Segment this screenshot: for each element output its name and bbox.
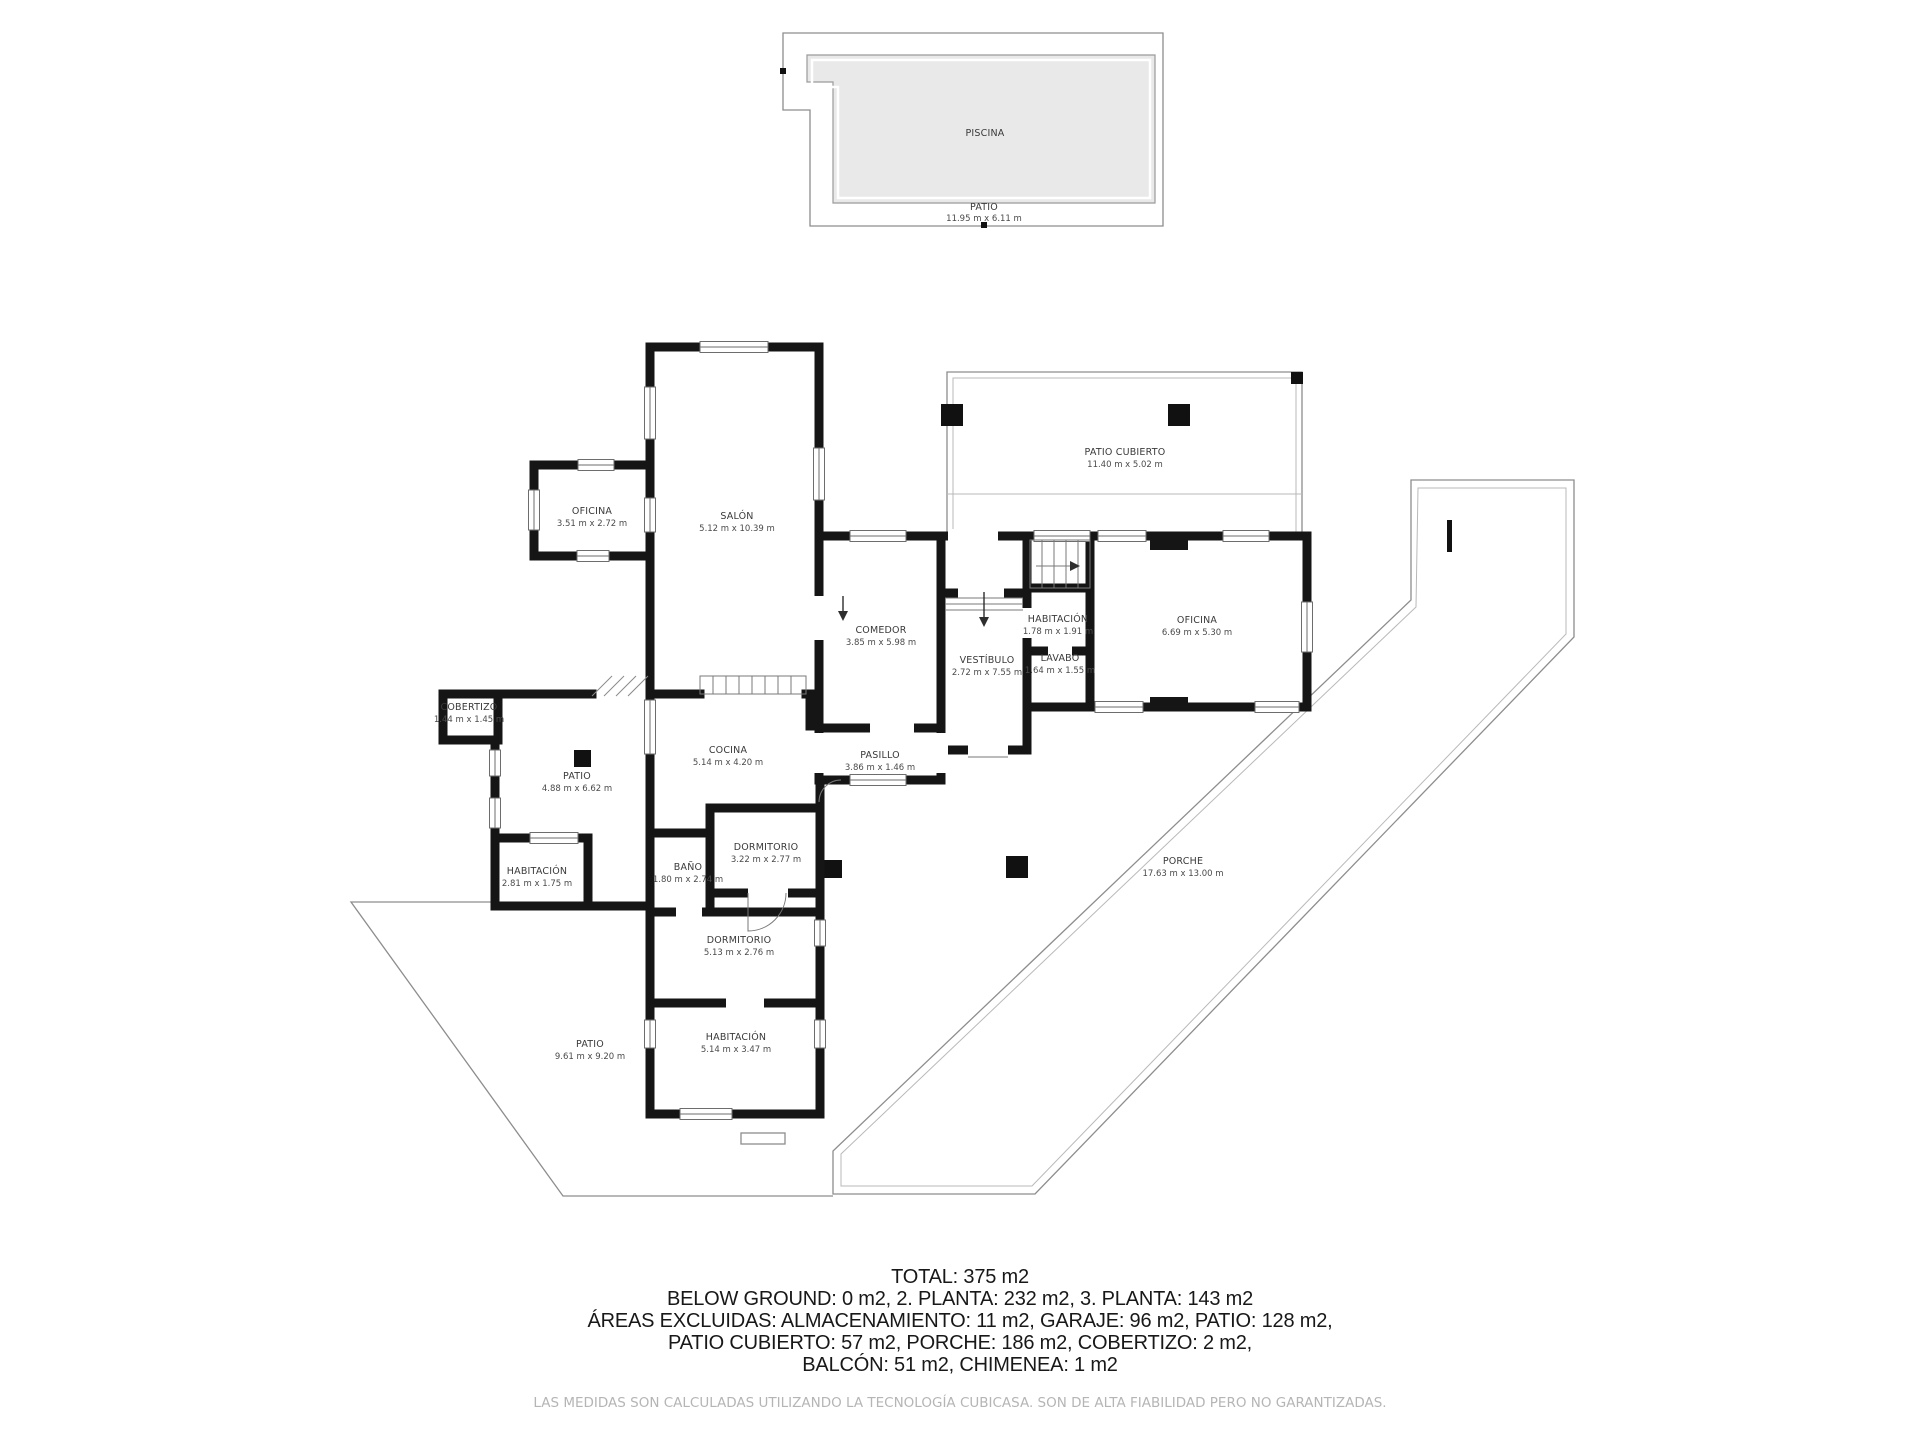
window	[1095, 702, 1143, 713]
window	[814, 448, 825, 500]
room-dims-habitacion-left: 2.81 m x 1.75 m	[502, 879, 572, 889]
room-dims-cocina: 5.14 m x 4.20 m	[693, 758, 763, 768]
room-dims-cobertizo: 1.44 m x 1.45 m	[434, 715, 504, 725]
room-label-habitacion-right: HABITACIÓN	[1028, 613, 1088, 625]
room-label-patio-bottom: PATIO	[576, 1039, 604, 1050]
footer-line-3: ÁREAS EXCLUIDAS: ALMACENAMIENTO: 11 m2, …	[588, 1309, 1333, 1332]
footer-total: TOTAL: 375 m2	[891, 1266, 1029, 1288]
room-dims-bano: 1.80 m x 2.74 m	[653, 875, 723, 885]
room-dims-comedor: 3.85 m x 5.98 m	[846, 638, 916, 648]
room-label-oficina-right: OFICINA	[1177, 615, 1217, 626]
pillar	[824, 860, 842, 878]
window	[850, 775, 906, 786]
room-label-patio-cubierto: PATIO CUBIERTO	[1085, 447, 1166, 458]
room-dims-patio-cubierto: 11.40 m x 5.02 m	[1087, 460, 1163, 470]
window	[645, 1020, 656, 1048]
pillar	[574, 750, 591, 767]
pool-marker	[780, 68, 786, 74]
window	[530, 833, 578, 844]
footer-disclaimer: LAS MEDIDAS SON CALCULADAS UTILIZANDO LA…	[533, 1394, 1386, 1411]
staircase	[1030, 540, 1090, 588]
window	[490, 798, 501, 828]
room-dims-vestibulo: 2.72 m x 7.55 m	[952, 668, 1022, 678]
window	[1302, 602, 1313, 652]
room-dims-oficina-left: 3.51 m x 2.72 m	[557, 519, 627, 529]
pillar	[941, 404, 963, 426]
window	[529, 490, 540, 530]
room-label-pool-patio: PATIO	[970, 202, 998, 213]
pillar	[1006, 856, 1028, 878]
footer: TOTAL: 375 m2 BELOW GROUND: 0 m2, 2. PLA…	[533, 1266, 1386, 1411]
room-label-bano: BAÑO	[674, 862, 702, 873]
window	[1223, 531, 1269, 542]
room-label-habitacion-bottom: HABITACIÓN	[706, 1031, 766, 1043]
room-dims-habitacion-right: 1.78 m x 1.91 m	[1023, 627, 1093, 637]
room-dims-pasillo: 3.86 m x 1.46 m	[845, 763, 915, 773]
room-label-lavabo: LAVABO	[1041, 653, 1080, 664]
room-dims-dormitorio-small: 3.22 m x 2.77 m	[731, 855, 801, 865]
room-dims-lavabo: 1.64 m x 1.55 m	[1025, 666, 1095, 676]
salon-steps	[700, 676, 806, 694]
room-label-oficina-left: OFICINA	[572, 506, 612, 517]
footer-line-2: BELOW GROUND: 0 m2, 2. PLANTA: 232 m2, 3…	[667, 1288, 1253, 1310]
room-label-habitacion-left: HABITACIÓN	[507, 865, 567, 877]
window	[1098, 531, 1146, 542]
room-dims-oficina-right: 6.69 m x 5.30 m	[1162, 628, 1232, 638]
room-label-cobertizo: COBERTIZO	[441, 702, 498, 713]
window	[1255, 702, 1299, 713]
room-label-cocina: COCINA	[709, 745, 748, 756]
room-dims-patio-bottom: 9.61 m x 9.20 m	[555, 1052, 625, 1062]
room-label-porche: PORCHE	[1163, 856, 1203, 867]
porche-gate-mark	[1447, 520, 1452, 552]
room-dims-porche: 17.63 m x 13.00 m	[1142, 869, 1223, 879]
footer-line-4: PATIO CUBIERTO: 57 m2, PORCHE: 186 m2, C…	[668, 1332, 1252, 1354]
window	[490, 750, 501, 776]
room-label-dormitorio-long: DORMITORIO	[707, 935, 772, 946]
room-dims-habitacion-bottom: 5.14 m x 3.47 m	[701, 1045, 771, 1055]
room-dims-dormitorio-long: 5.13 m x 2.76 m	[704, 948, 774, 958]
window	[815, 1020, 826, 1048]
window	[815, 920, 826, 946]
window	[645, 700, 656, 754]
window	[577, 551, 609, 562]
window	[645, 498, 656, 532]
room-dims-pool-patio: 11.95 m x 6.11 m	[946, 214, 1022, 224]
room-label-vestibulo: VESTÍBULO	[960, 654, 1015, 666]
window	[578, 460, 614, 471]
window	[645, 387, 656, 439]
room-label-comedor: COMEDOR	[855, 625, 906, 636]
room-label-pasillo: PASILLO	[860, 750, 900, 761]
room-label-dormitorio-small: DORMITORIO	[734, 842, 799, 853]
pillar	[1168, 404, 1190, 426]
pool-area: PISCINA PATIO 11.95 m x 6.11 m	[780, 33, 1163, 228]
window	[680, 1109, 732, 1120]
pillar	[1291, 372, 1303, 384]
room-dims-patio-upper: 4.88 m x 6.62 m	[542, 784, 612, 794]
floorplan-canvas: PISCINA PATIO 11.95 m x 6.11 m	[0, 0, 1920, 1440]
window	[850, 531, 906, 542]
window	[700, 342, 768, 353]
room-dims-salon: 5.12 m x 10.39 m	[699, 524, 775, 534]
ramp-hatch	[592, 676, 648, 696]
footer-line-5: BALCÓN: 51 m2, CHIMENEA: 1 m2	[802, 1353, 1117, 1376]
room-label-piscina: PISCINA	[965, 128, 1004, 139]
room-label-patio-upper: PATIO	[563, 771, 591, 782]
floorplan-page: PISCINA PATIO 11.95 m x 6.11 m	[0, 0, 1920, 1440]
doormat	[741, 1133, 785, 1144]
room-label-salon: SALÓN	[720, 510, 753, 522]
